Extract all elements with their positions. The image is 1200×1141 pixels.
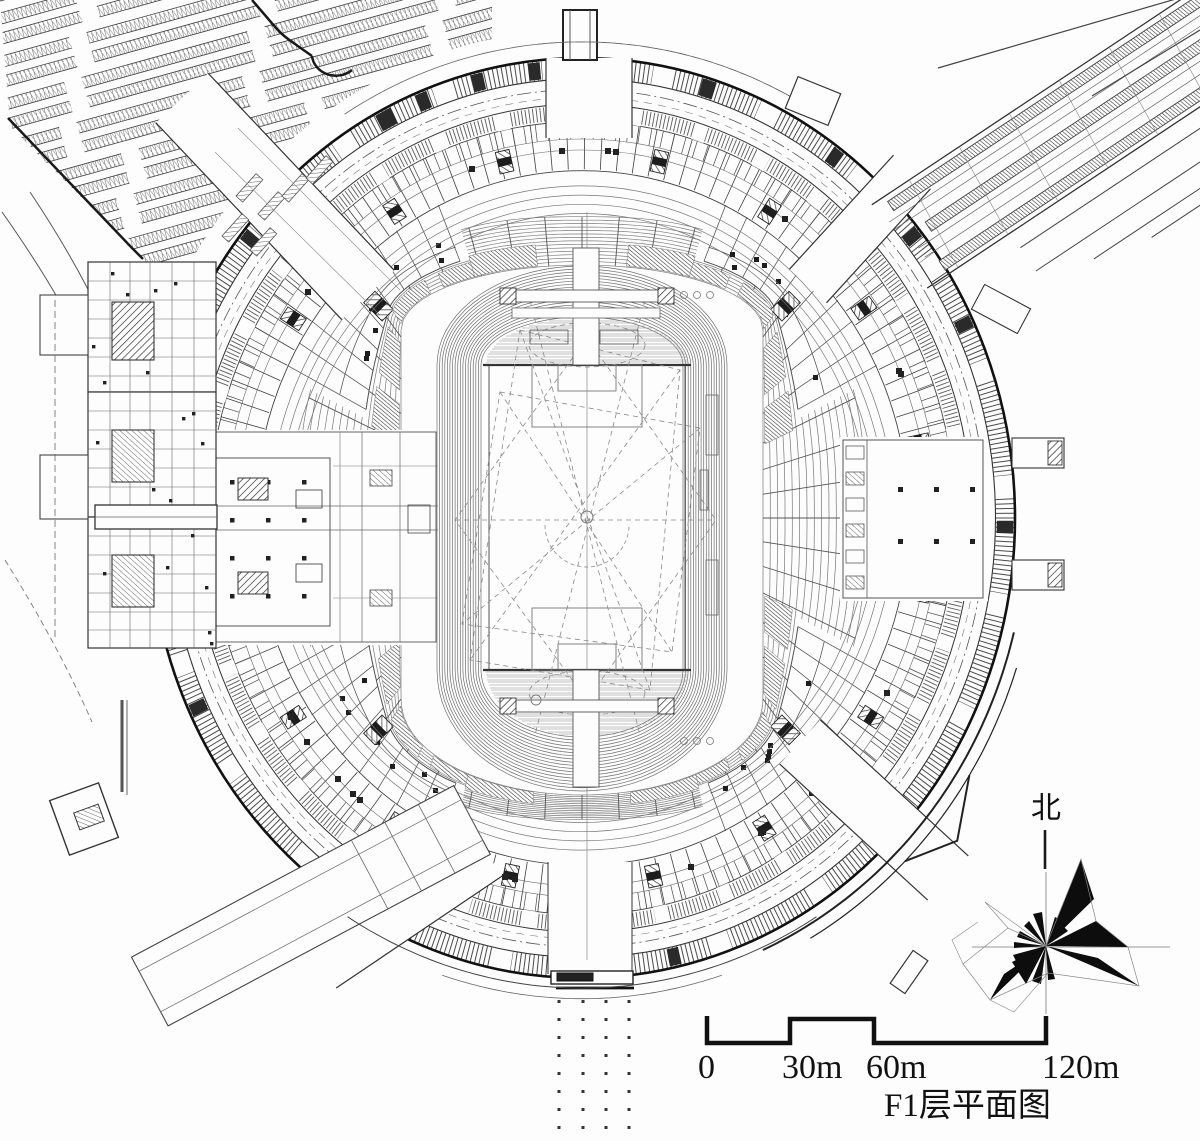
svg-text:0: 0: [698, 1049, 715, 1086]
svg-text:60m: 60m: [866, 1049, 926, 1086]
svg-text:F1层平面图: F1层平面图: [884, 1088, 1051, 1124]
svg-text:30m: 30m: [782, 1049, 842, 1086]
svg-text:北: 北: [1031, 792, 1061, 825]
svg-text:120m: 120m: [1042, 1049, 1119, 1086]
